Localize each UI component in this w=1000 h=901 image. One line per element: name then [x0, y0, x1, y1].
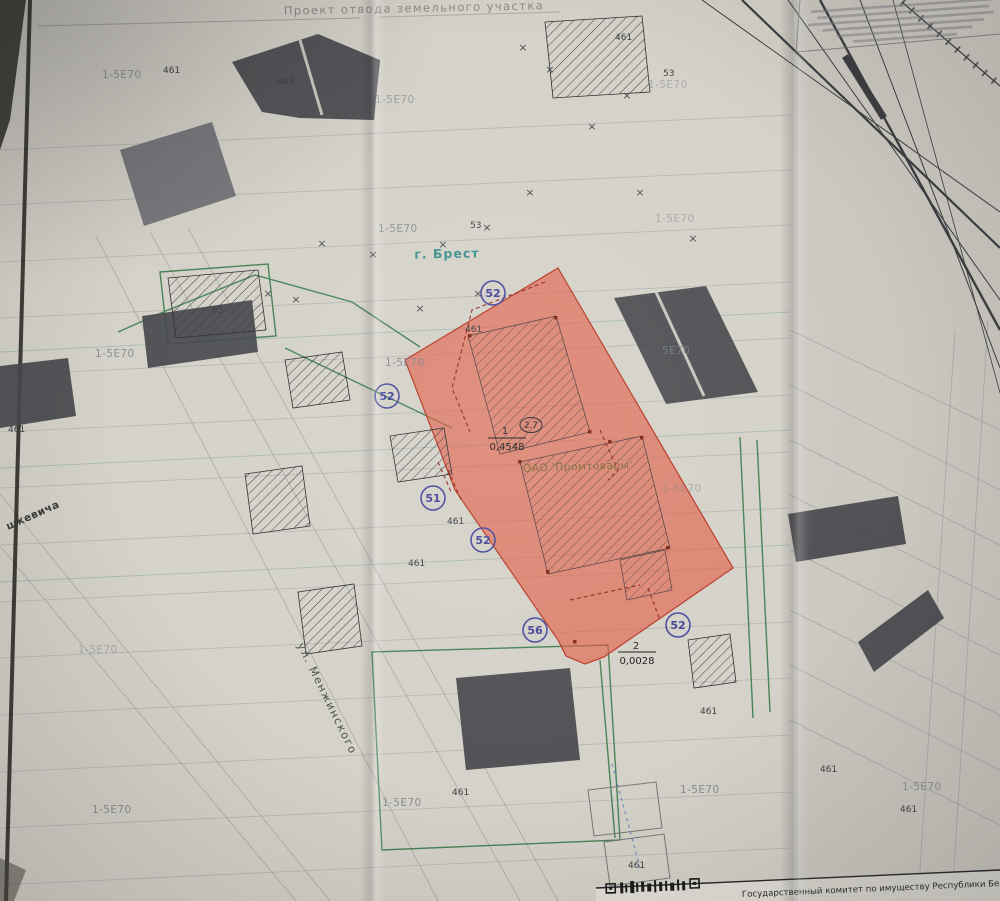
- survey-cross-mark: ×: [545, 63, 554, 76]
- building: [0, 358, 76, 428]
- building: [788, 496, 906, 562]
- parcel-number: 2: [633, 641, 639, 652]
- parcel-area-value: 0,4548: [490, 442, 525, 453]
- zone-code-label: 1-5Е70: [375, 94, 415, 106]
- survey-cross-mark: ×: [525, 186, 534, 199]
- survey-cross-mark: ×: [415, 302, 424, 315]
- utility-number-label: 461: [408, 559, 425, 569]
- survey-point-number: 56: [527, 624, 543, 637]
- utility-number-label: 63: [212, 306, 223, 316]
- title-block: Государственный комитет по имуществу Рес…: [596, 870, 1000, 901]
- building: [858, 590, 944, 672]
- zone-code-label: 1-5Е70: [78, 644, 118, 656]
- corner-note-illegible: [807, 0, 995, 46]
- zone-code-label: 1-5Е70: [662, 483, 702, 495]
- survey-point-number: 52: [485, 287, 500, 300]
- survey-cross-mark: ×: [482, 221, 491, 234]
- sheet-title: Проект отвода земельного участка: [284, 0, 545, 18]
- survey-cross-mark: ×: [291, 293, 300, 306]
- utility-number-label: 461: [277, 77, 294, 87]
- map-canvas: 1-5Е701-5Е701-5Е701-5Е701-5Е701-5Е701-5Е…: [0, 0, 1000, 901]
- survey-point: 56: [523, 618, 547, 642]
- zone-code-label: 1-5Е70: [95, 348, 135, 360]
- building: [456, 668, 580, 770]
- utility-number-label: 461: [820, 765, 837, 775]
- parcel-area-value: 0,0028: [620, 656, 655, 667]
- land-allocation-map-photo: 1-5Е701-5Е701-5Е701-5Е701-5Е701-5Е701-5Е…: [0, 0, 1000, 901]
- survey-cross-mark: ×: [622, 89, 631, 102]
- zone-code-label: 1-5Е70: [648, 79, 688, 91]
- building: [232, 34, 380, 120]
- survey-point-number: 52: [475, 534, 490, 547]
- utility-number-label: 53: [470, 221, 481, 231]
- parcel-number: 1: [502, 426, 508, 437]
- zone-code-label: 1-5Е70: [902, 781, 942, 793]
- zone-code-label: 1-5Е70: [92, 804, 132, 816]
- survey-cross-mark: ×: [263, 287, 272, 300]
- zone-code-label: 1-5Е70: [378, 223, 418, 235]
- utility-number-label: 461: [8, 425, 25, 435]
- survey-cross-mark: ×: [688, 232, 697, 245]
- zone-code-label: 1-5Е70: [102, 69, 142, 81]
- survey-point: 51: [421, 486, 445, 510]
- zone-code-label: 1-5Е70: [385, 357, 425, 369]
- utility-number-label: 461: [465, 325, 482, 335]
- survey-cross-mark: ×: [368, 248, 377, 261]
- parcel-area-extra: 2 0,0028: [618, 641, 656, 667]
- utility-number-label: 461: [615, 33, 632, 43]
- building: [120, 122, 236, 226]
- survey-cross-mark: ×: [518, 41, 527, 54]
- utility-number-label: 461: [447, 517, 464, 527]
- city-label: г. Брест: [414, 245, 480, 261]
- street-label-partial: шкевича: [4, 499, 61, 533]
- elevation-value: 2.7: [524, 421, 538, 431]
- right-section-lines: [790, 320, 1000, 901]
- utility-number-label: 461: [900, 805, 917, 815]
- survey-point: 52: [481, 281, 505, 305]
- survey-point-number: 52: [670, 619, 685, 632]
- survey-point: 52: [666, 613, 690, 637]
- survey-point-number: 52: [379, 390, 394, 403]
- zone-code-label: 5Е70: [662, 345, 690, 357]
- utility-number-label: 461: [452, 788, 469, 798]
- zone-code-label: 1-5Е70: [680, 784, 720, 796]
- utility-number-label: 461: [163, 66, 180, 76]
- zone-code-label: 1-5Е70: [382, 797, 422, 809]
- survey-point-number: 51: [425, 492, 440, 505]
- survey-cross-mark: ×: [317, 237, 326, 250]
- utility-number-label: 461: [628, 861, 645, 871]
- zone-code-label: 1-5Е70: [655, 213, 695, 225]
- utility-number-label: 461: [700, 707, 717, 717]
- blue-dashed-line: [612, 764, 640, 868]
- utility-number-label: 53: [663, 69, 674, 79]
- survey-point: 52: [375, 384, 399, 408]
- survey-cross-mark: ×: [587, 120, 596, 133]
- railway-lines: [702, 0, 1000, 393]
- survey-cross-mark: ×: [635, 186, 644, 199]
